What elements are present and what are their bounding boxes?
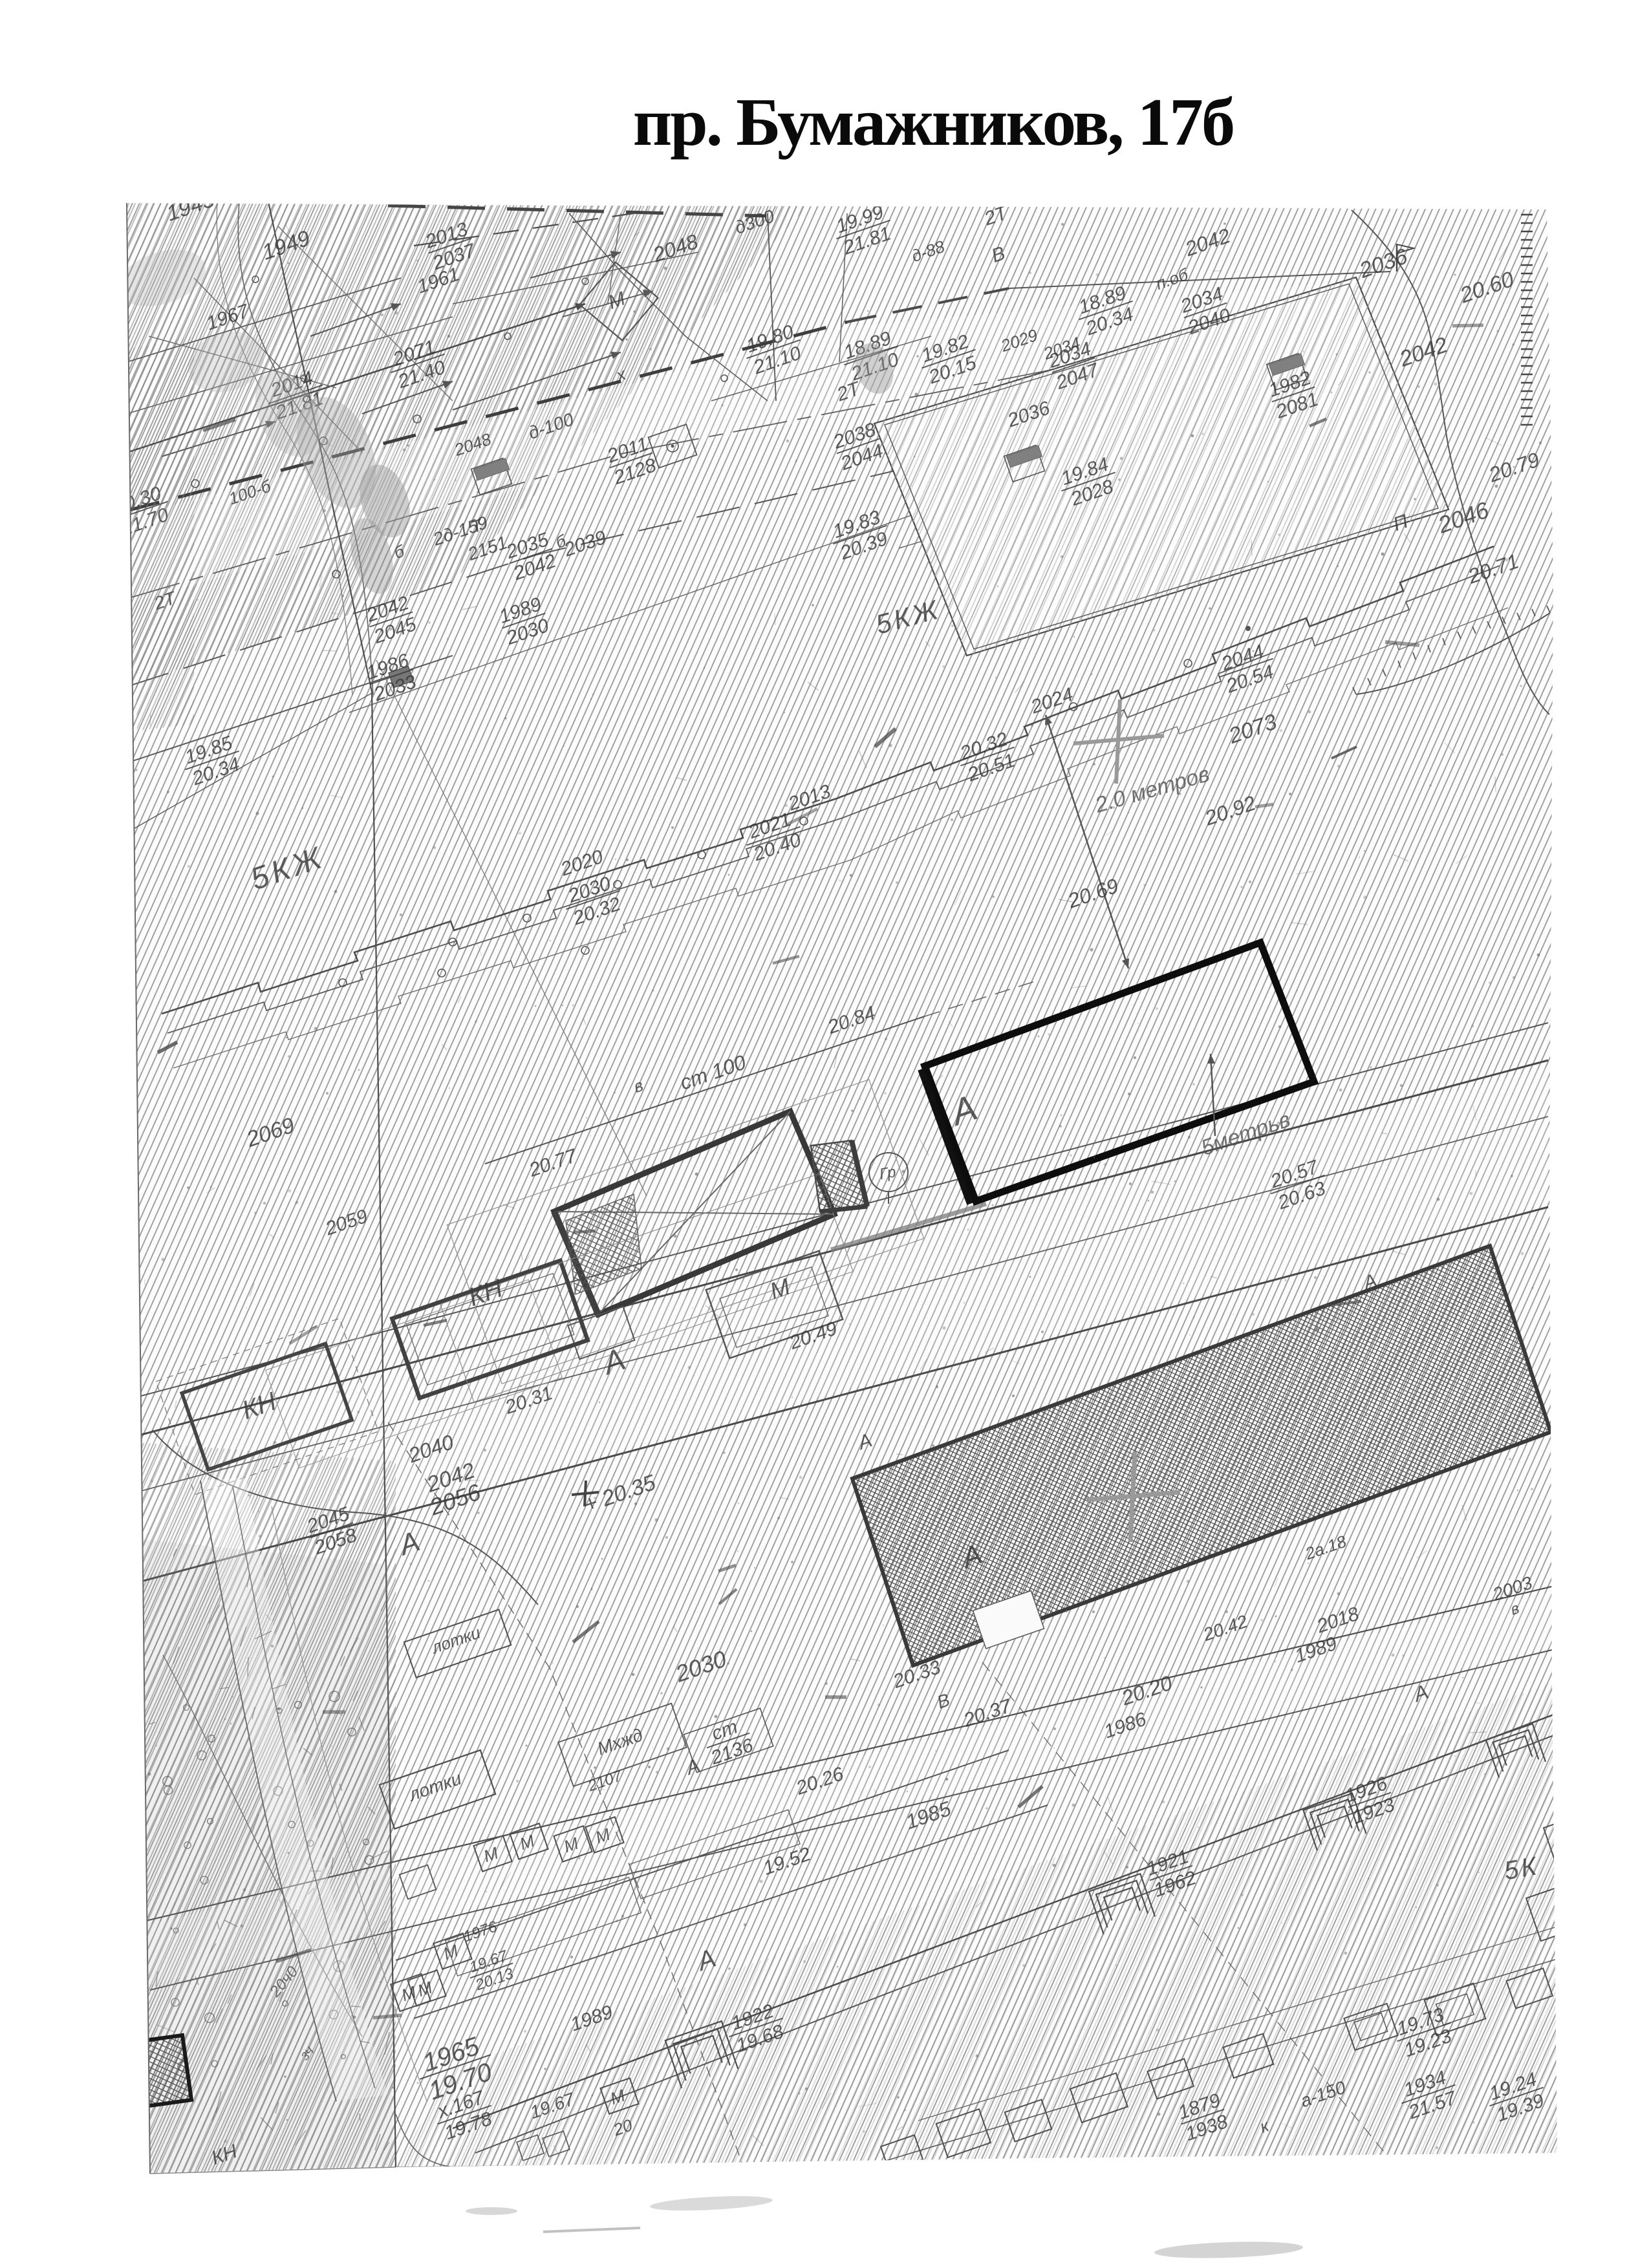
svg-text:Гр: Гр bbox=[878, 1163, 898, 1183]
svg-text:5К: 5К bbox=[1502, 1852, 1541, 1886]
